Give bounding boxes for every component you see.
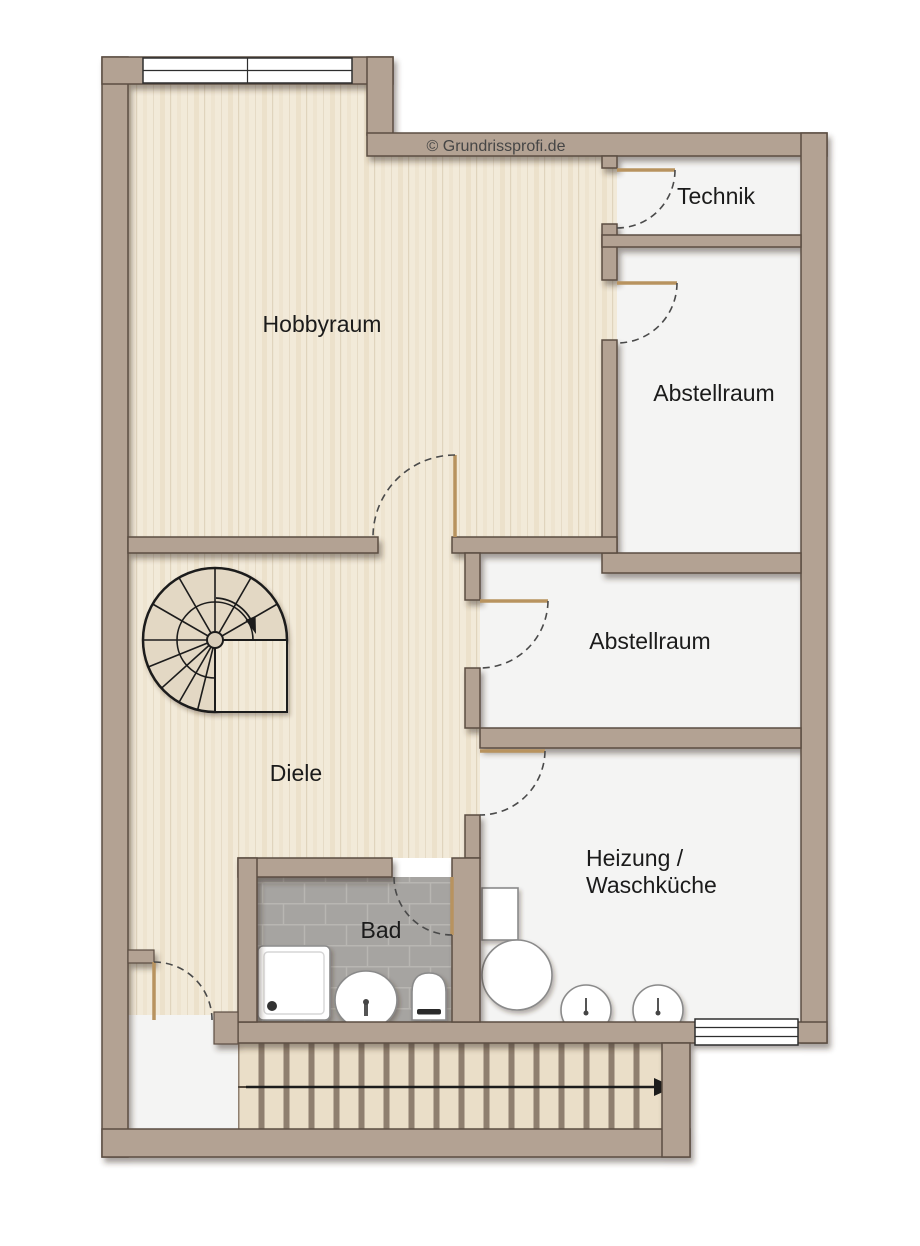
floor-plan-drawing: © Grundrissprofi.de Hobbyraum Technik Ab…: [0, 0, 920, 1246]
wall-technik-south: [602, 235, 801, 247]
spiral-staircase-icon: [143, 568, 287, 712]
room-label-abstellraum-mid: Abstellraum: [589, 628, 710, 654]
wall-diele-east-c: [465, 815, 480, 858]
room-label-diele: Diele: [270, 760, 322, 786]
wall-mid-vertical-b: [602, 340, 617, 553]
wall-technik-jamb: [602, 156, 617, 168]
room-label-technik: Technik: [677, 183, 755, 209]
window-north-icon: [143, 58, 352, 83]
wall-stair-east: [662, 1043, 690, 1157]
wall-stair-south: [102, 1129, 690, 1157]
wall-diele-east-a: [465, 553, 480, 600]
hobbyraum-floor-east: [367, 156, 617, 553]
room-label-bad: Bad: [361, 917, 402, 943]
wall-hobbyraum-south-east: [452, 537, 617, 553]
wall-landing-jamb: [214, 1012, 238, 1044]
room-label-hobbyraum: Hobbyraum: [263, 311, 382, 337]
wall-bad-north: [238, 858, 392, 877]
wall-east: [801, 133, 827, 1043]
wall-exit-door-jamb: [128, 950, 154, 963]
room-label-heizung-line2: Waschküche: [586, 872, 717, 898]
window-south-icon: [695, 1019, 798, 1045]
wall-mid-vertical-a: [602, 224, 617, 280]
room-label-abstellraum-top: Abstellraum: [653, 380, 774, 406]
diele-floor-south: [128, 858, 238, 1015]
shower-tray-icon: [258, 946, 330, 1020]
washing-machine-icon: [482, 888, 518, 940]
wall-bad-west: [238, 858, 257, 1022]
boiler-icon: [482, 940, 552, 1010]
wall-diele-east-b: [465, 668, 480, 728]
wall-west: [102, 57, 128, 1157]
washbasin-icon: [335, 971, 397, 1029]
spiral-center-pole: [207, 632, 223, 648]
wall-hobbyraum-south-west: [128, 537, 378, 553]
wall-north-step: [367, 57, 393, 135]
wall-bad-east: [452, 858, 480, 1022]
wall-abstellraum-divider: [602, 553, 801, 573]
watermark-text: © Grundrissprofi.de: [427, 138, 566, 155]
toilet-icon: [412, 973, 446, 1020]
straight-staircase-icon: [238, 1043, 674, 1129]
wall-heizung-north: [480, 728, 801, 748]
floor-plan-page: © Grundrissprofi.de Hobbyraum Technik Ab…: [0, 0, 920, 1246]
room-label-heizung-line1: Heizung /: [586, 845, 684, 871]
